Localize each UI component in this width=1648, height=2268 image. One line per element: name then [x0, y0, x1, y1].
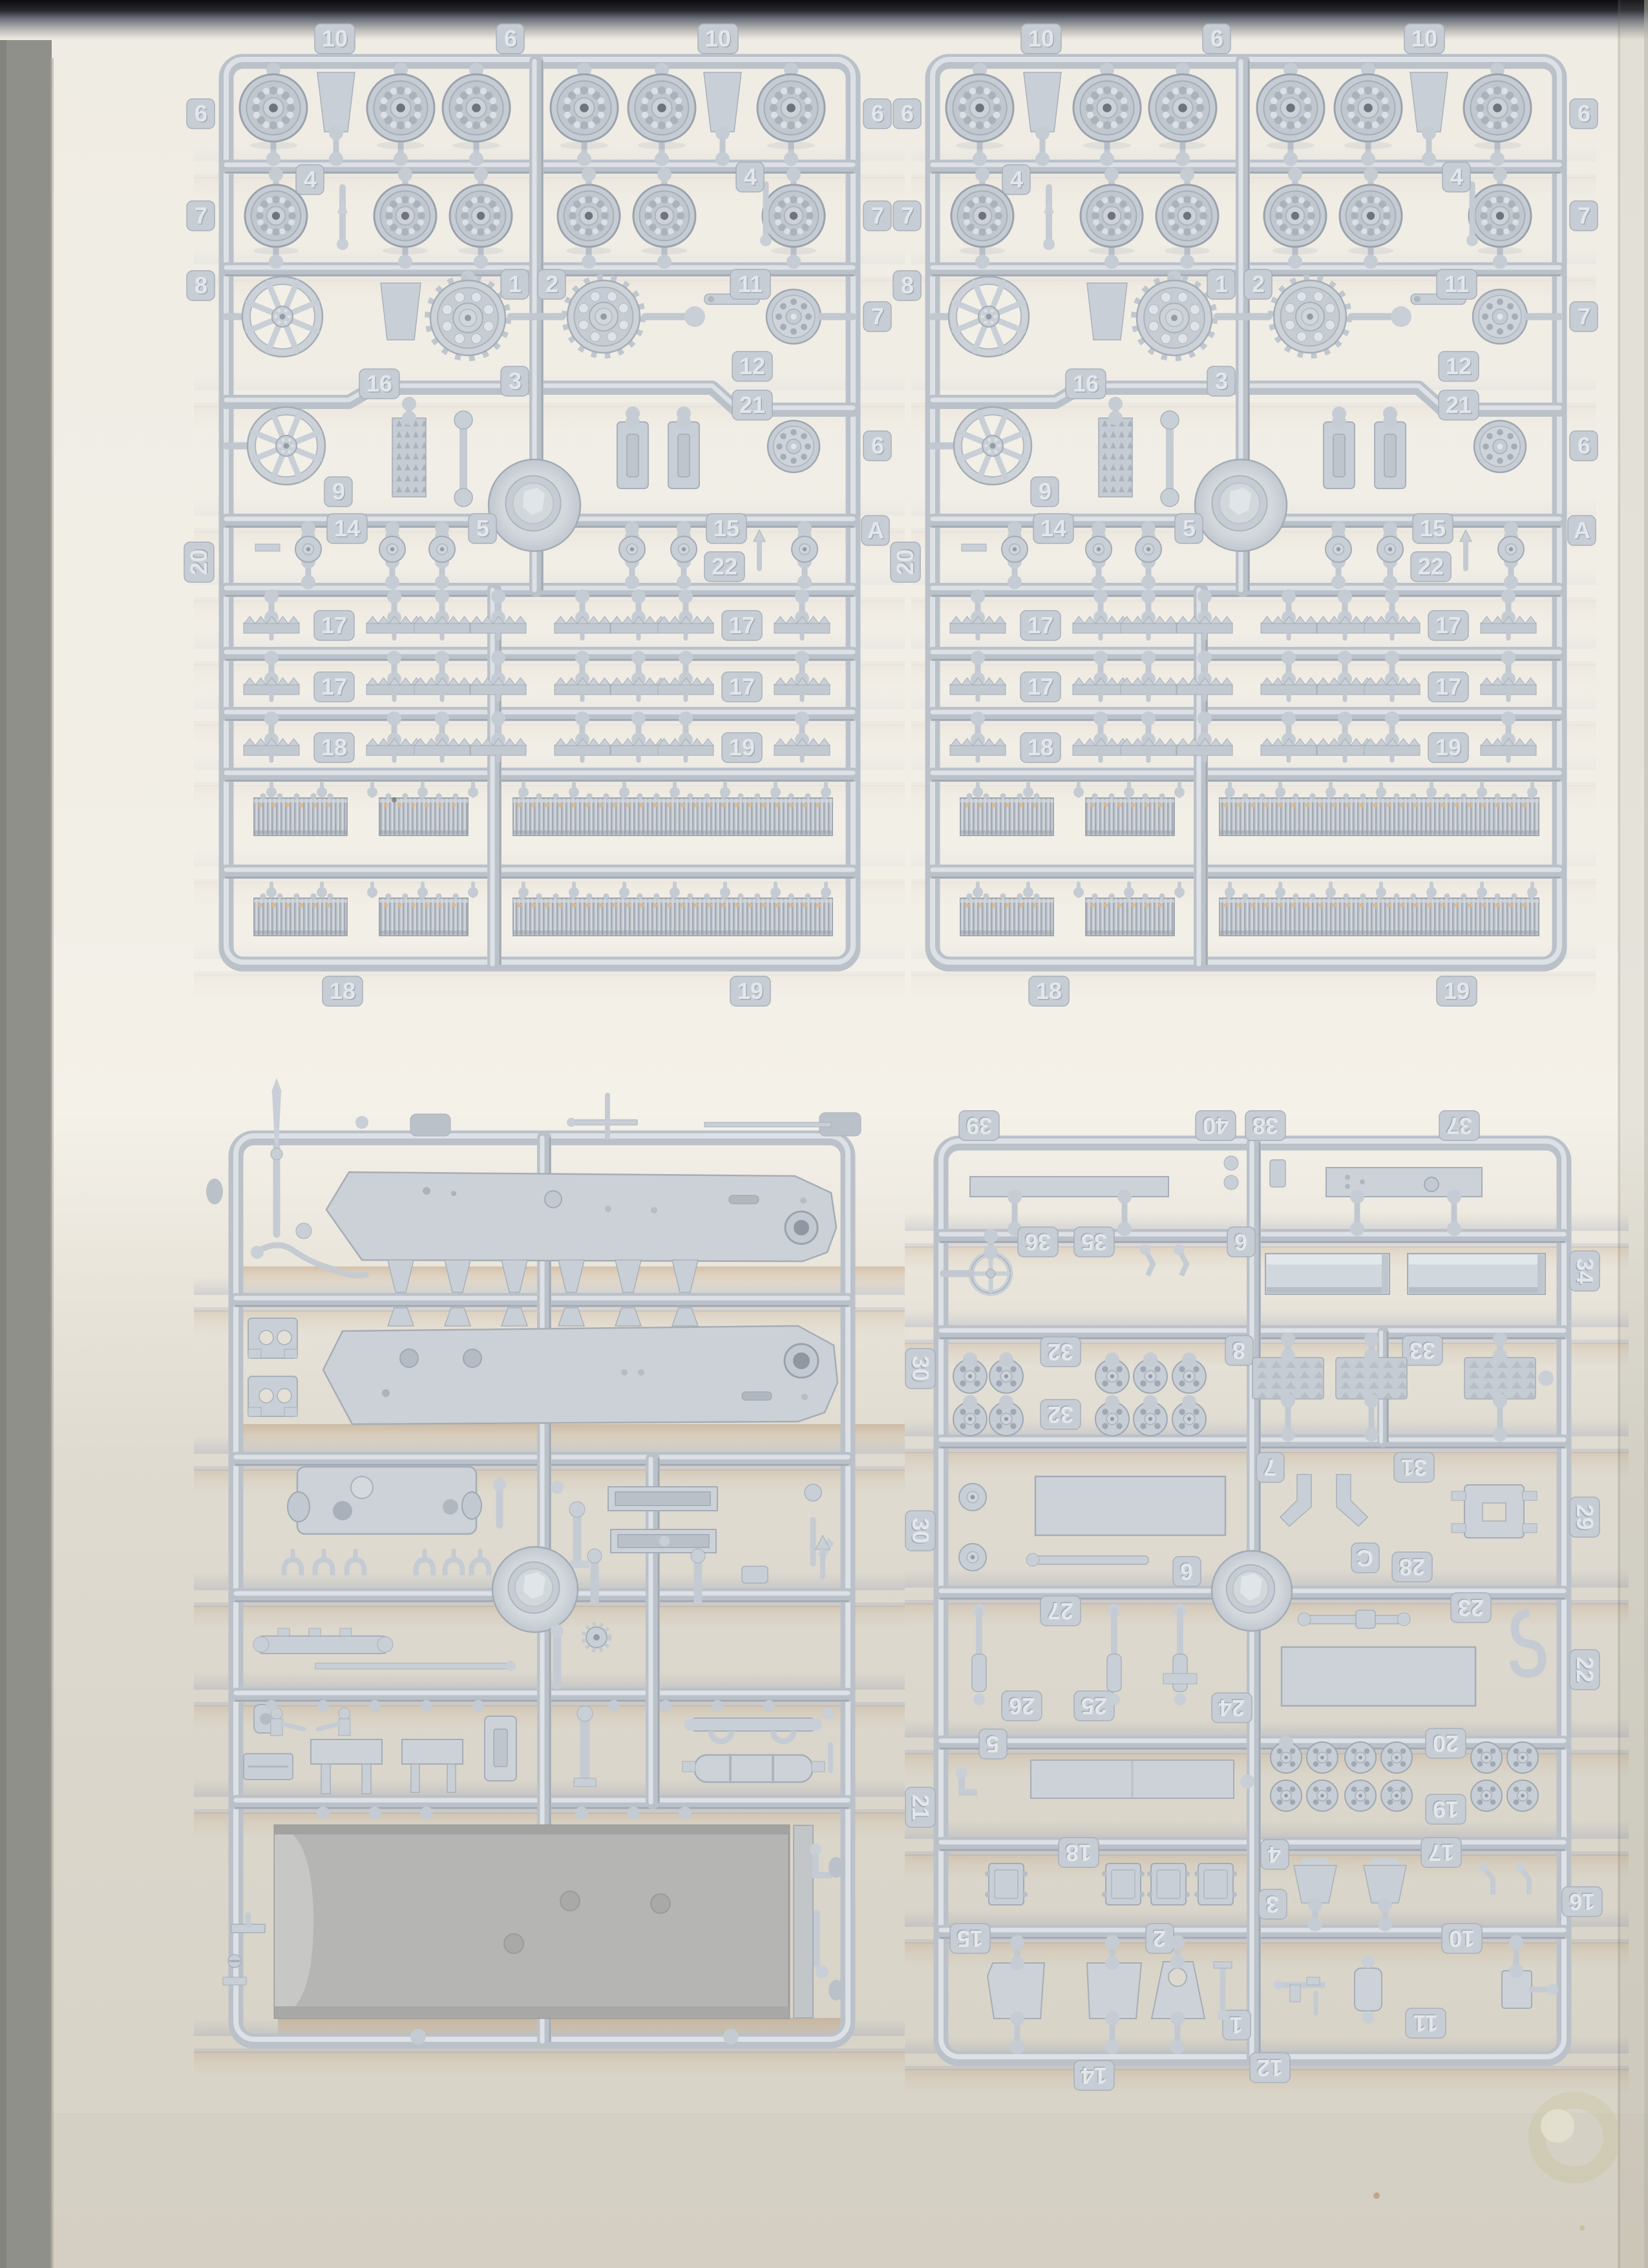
- svg-text:17: 17: [1428, 1840, 1454, 1866]
- svg-text:39: 39: [966, 1113, 992, 1139]
- svg-text:12: 12: [739, 353, 765, 379]
- svg-text:C: C: [1357, 1545, 1373, 1571]
- svg-text:20: 20: [1433, 1730, 1459, 1757]
- svg-text:1: 1: [1215, 271, 1228, 297]
- svg-text:6: 6: [1234, 1229, 1247, 1255]
- svg-text:19: 19: [1433, 1796, 1459, 1823]
- svg-text:7: 7: [1578, 202, 1590, 229]
- svg-text:5: 5: [986, 1731, 999, 1758]
- svg-text:19: 19: [737, 978, 763, 1004]
- svg-text:30: 30: [907, 1518, 934, 1544]
- svg-text:1: 1: [1230, 2012, 1243, 2039]
- svg-text:10: 10: [1411, 25, 1437, 52]
- svg-text:40: 40: [1203, 1113, 1229, 1139]
- svg-text:26: 26: [1009, 1693, 1035, 1719]
- svg-text:18: 18: [321, 734, 347, 761]
- svg-text:6: 6: [871, 100, 884, 127]
- svg-text:6: 6: [1180, 1559, 1193, 1585]
- svg-text:24: 24: [1219, 1695, 1245, 1721]
- svg-text:4: 4: [1450, 163, 1463, 190]
- svg-text:17: 17: [1435, 673, 1461, 700]
- svg-text:4: 4: [1010, 166, 1023, 193]
- svg-text:17: 17: [729, 673, 755, 700]
- svg-text:27: 27: [1048, 1598, 1073, 1624]
- svg-text:17: 17: [321, 612, 347, 638]
- svg-text:5: 5: [476, 515, 489, 541]
- svg-text:20: 20: [892, 549, 918, 575]
- svg-text:9: 9: [1039, 478, 1051, 505]
- svg-text:17: 17: [1028, 612, 1053, 638]
- svg-text:A: A: [867, 517, 884, 543]
- svg-text:11: 11: [1413, 2010, 1438, 2037]
- svg-text:22: 22: [1572, 1657, 1598, 1683]
- svg-text:23: 23: [1458, 1595, 1484, 1621]
- svg-text:6: 6: [1578, 432, 1590, 459]
- svg-text:3: 3: [509, 368, 522, 394]
- svg-text:7: 7: [1578, 303, 1590, 330]
- svg-text:28: 28: [1399, 1554, 1425, 1580]
- svg-text:18: 18: [1028, 734, 1053, 761]
- svg-text:18: 18: [1036, 978, 1062, 1004]
- svg-text:6: 6: [504, 25, 517, 52]
- svg-text:5: 5: [1183, 515, 1196, 541]
- svg-text:15: 15: [713, 515, 739, 541]
- svg-text:32: 32: [1048, 1339, 1073, 1365]
- svg-text:31: 31: [1401, 1454, 1427, 1481]
- svg-text:2: 2: [545, 271, 558, 297]
- svg-text:38: 38: [1252, 1113, 1278, 1139]
- svg-text:6: 6: [901, 100, 914, 127]
- svg-text:17: 17: [1028, 673, 1053, 700]
- svg-text:18: 18: [330, 978, 355, 1004]
- svg-text:34: 34: [1572, 1258, 1598, 1284]
- svg-text:6: 6: [195, 100, 207, 127]
- svg-text:7: 7: [1263, 1454, 1276, 1481]
- svg-text:14: 14: [1041, 515, 1066, 541]
- svg-text:10: 10: [1028, 25, 1054, 52]
- svg-text:14: 14: [1081, 2063, 1107, 2089]
- svg-text:2: 2: [1153, 1926, 1166, 1952]
- svg-text:19: 19: [729, 734, 755, 761]
- svg-text:1: 1: [509, 271, 522, 297]
- svg-text:7: 7: [195, 202, 207, 229]
- svg-text:6: 6: [1578, 100, 1590, 127]
- svg-text:21: 21: [739, 392, 765, 418]
- svg-text:4: 4: [1268, 1842, 1281, 1868]
- svg-text:3: 3: [1266, 1891, 1279, 1918]
- svg-text:15: 15: [1420, 515, 1446, 541]
- svg-text:29: 29: [1572, 1504, 1598, 1530]
- svg-text:8: 8: [195, 272, 207, 299]
- svg-text:8: 8: [1232, 1338, 1245, 1364]
- svg-text:30: 30: [907, 1356, 934, 1381]
- svg-text:16: 16: [366, 370, 392, 397]
- svg-text:22: 22: [712, 553, 737, 580]
- svg-text:37: 37: [1446, 1113, 1472, 1139]
- svg-text:7: 7: [871, 303, 884, 330]
- svg-text:17: 17: [729, 612, 755, 638]
- svg-text:32: 32: [1048, 1402, 1073, 1428]
- svg-text:10: 10: [705, 25, 731, 52]
- svg-text:25: 25: [1081, 1693, 1107, 1719]
- svg-text:7: 7: [901, 202, 914, 229]
- svg-text:4: 4: [744, 163, 757, 190]
- svg-text:8: 8: [901, 272, 914, 299]
- svg-text:33: 33: [1410, 1338, 1435, 1364]
- svg-text:12: 12: [1446, 353, 1472, 379]
- svg-text:16: 16: [1073, 370, 1099, 397]
- svg-text:2: 2: [1252, 271, 1265, 297]
- svg-text:36: 36: [1025, 1229, 1051, 1255]
- svg-text:A: A: [1574, 517, 1590, 543]
- svg-text:19: 19: [1444, 978, 1470, 1004]
- svg-text:21: 21: [907, 1794, 934, 1820]
- svg-text:9: 9: [332, 478, 345, 505]
- svg-text:3: 3: [1215, 368, 1228, 394]
- svg-text:20: 20: [185, 549, 212, 575]
- svg-text:12: 12: [1257, 2055, 1283, 2081]
- svg-text:18: 18: [1066, 1840, 1092, 1866]
- svg-text:35: 35: [1081, 1229, 1107, 1255]
- svg-text:6: 6: [1210, 25, 1223, 52]
- svg-text:21: 21: [1446, 392, 1472, 418]
- svg-text:11: 11: [738, 271, 763, 297]
- svg-text:19: 19: [1435, 734, 1461, 761]
- svg-text:10: 10: [1449, 1926, 1475, 1952]
- svg-text:6: 6: [871, 432, 884, 459]
- svg-text:14: 14: [334, 515, 360, 541]
- svg-text:15: 15: [957, 1926, 983, 1952]
- svg-text:7: 7: [871, 202, 884, 229]
- svg-text:17: 17: [321, 673, 347, 700]
- svg-text:4: 4: [304, 166, 317, 193]
- svg-text:22: 22: [1418, 553, 1444, 580]
- svg-text:11: 11: [1444, 271, 1469, 297]
- svg-text:16: 16: [1569, 1889, 1595, 1915]
- svg-text:17: 17: [1435, 612, 1461, 638]
- svg-text:10: 10: [322, 25, 348, 52]
